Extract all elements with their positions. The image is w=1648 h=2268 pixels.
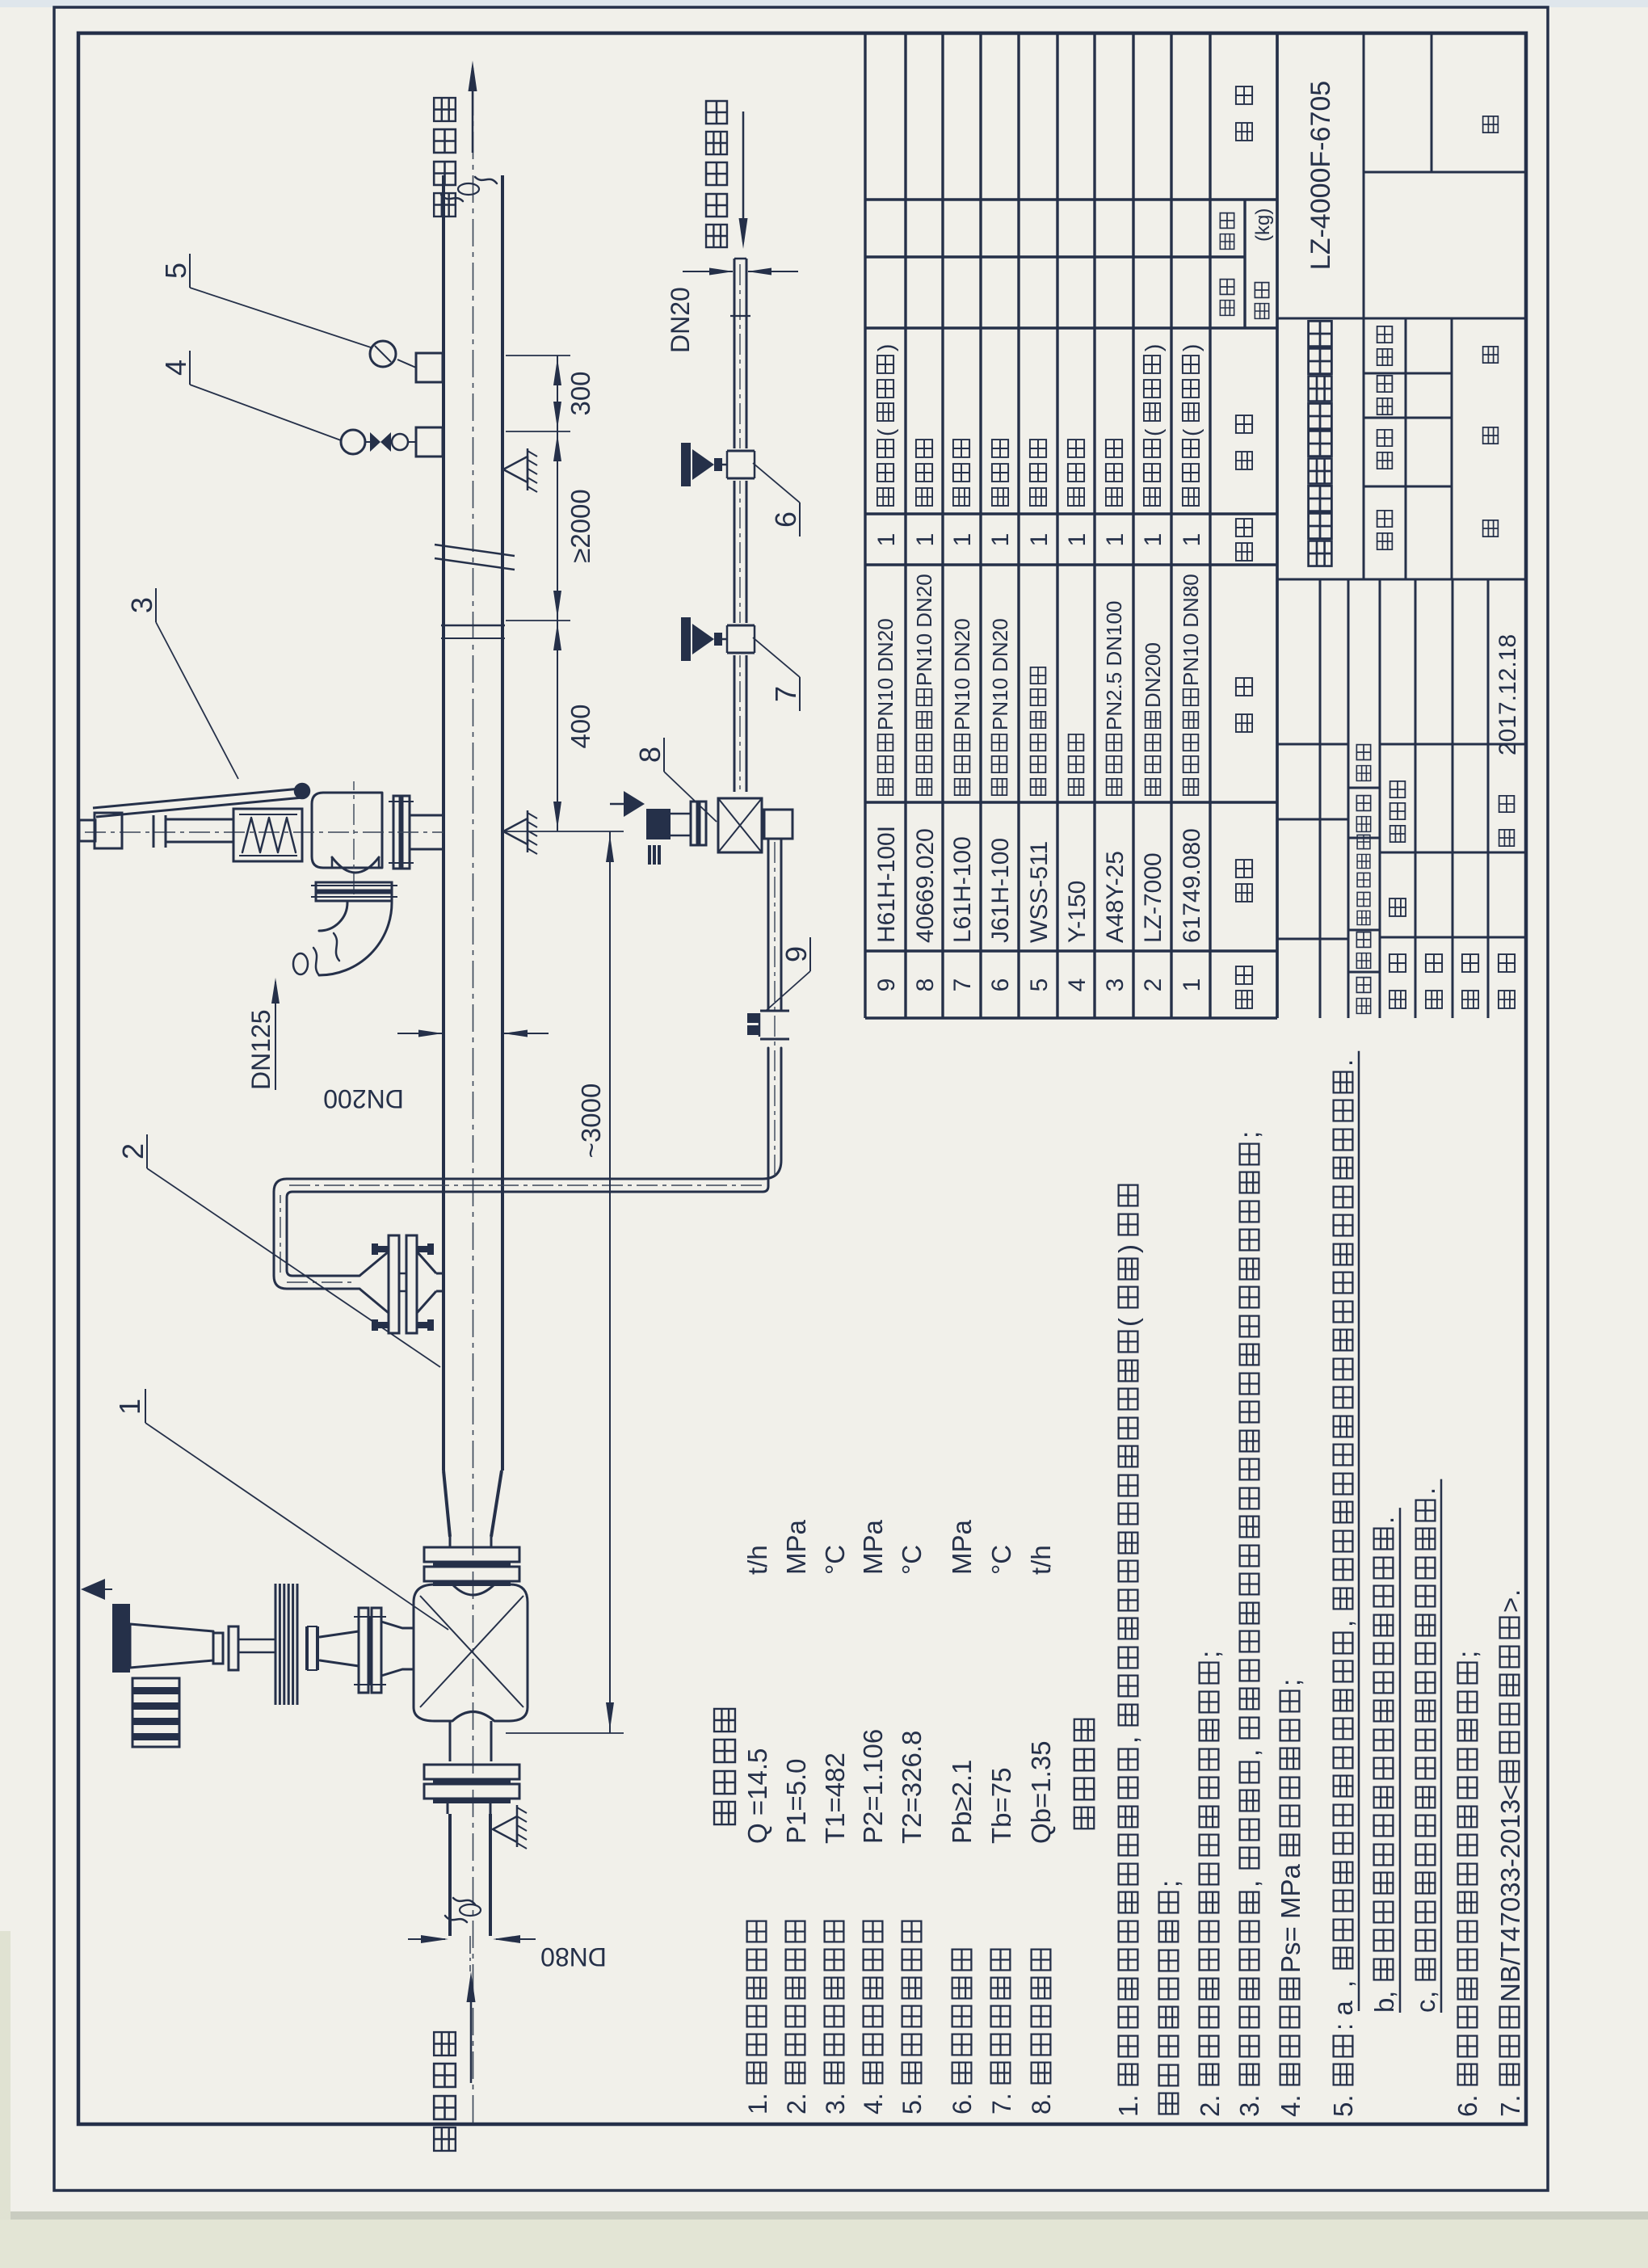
svg-text:.: . <box>1369 1517 1399 1524</box>
svg-text:;: ; <box>1154 1880 1184 1887</box>
svg-text:300: 300 <box>565 371 595 415</box>
svg-text:.: . <box>1410 1487 1440 1495</box>
svg-text:LZ-4000F-6705: LZ-4000F-6705 <box>1305 81 1336 270</box>
svg-text:9: 9 <box>780 946 813 962</box>
svg-text:;: ; <box>1453 1651 1482 1658</box>
svg-text:,: , <box>1410 1991 1440 1998</box>
svg-text:2: 2 <box>116 1143 149 1159</box>
svg-text:Pb≥2.1: Pb≥2.1 <box>947 1760 977 1844</box>
svg-text:H61H-100I: H61H-100I <box>873 826 900 943</box>
svg-text:4: 4 <box>159 360 192 376</box>
svg-text:;: ; <box>1195 1651 1225 1658</box>
svg-text:t/h: t/h <box>742 1545 772 1575</box>
svg-text:2017.12.18: 2017.12.18 <box>1495 634 1521 755</box>
svg-text:3: 3 <box>125 597 158 613</box>
svg-text:3.: 3. <box>821 2093 850 2114</box>
svg-text:Y-150: Y-150 <box>1064 881 1091 943</box>
svg-text:9: 9 <box>873 978 900 992</box>
svg-text:7.: 7. <box>1495 2094 1525 2117</box>
svg-text:MPa: MPa <box>947 1520 977 1576</box>
svg-text:7: 7 <box>769 686 802 702</box>
svg-text:t/h: t/h <box>1026 1545 1056 1575</box>
svg-text:2.: 2. <box>1195 2094 1225 2117</box>
svg-text:MPa: MPa <box>781 1520 811 1576</box>
svg-text:T1=482: T1=482 <box>820 1753 850 1844</box>
svg-text:c: c <box>1410 2000 1440 2013</box>
svg-text:DN20: DN20 <box>666 287 695 353</box>
svg-text:PN10 DN20: PN10 DN20 <box>988 618 1012 730</box>
svg-text:): ) <box>873 344 898 351</box>
svg-text:6: 6 <box>987 978 1014 992</box>
svg-text:>: > <box>1495 1597 1525 1613</box>
svg-text:NB/T47033-2013: NB/T47033-2013 <box>1495 1799 1525 2002</box>
svg-text:,: , <box>1113 1736 1143 1744</box>
svg-text:DN80: DN80 <box>540 1942 607 1971</box>
svg-text:,: , <box>1234 1749 1264 1757</box>
svg-text:;: ; <box>1276 1679 1305 1686</box>
svg-text:1.: 1. <box>743 2093 772 2114</box>
svg-text:4.: 4. <box>1276 2094 1305 2117</box>
svg-text:LZ-7000: LZ-7000 <box>1140 852 1167 943</box>
svg-text:Ps= MPa: Ps= MPa <box>1276 1864 1305 1973</box>
svg-text:6: 6 <box>769 511 802 528</box>
svg-text:6.: 6. <box>1453 2094 1482 2117</box>
svg-text:PN10 DN20: PN10 DN20 <box>873 618 898 730</box>
svg-text:2.: 2. <box>782 2093 811 2114</box>
svg-text:,: , <box>1369 1991 1399 1998</box>
svg-text:Q =14.5: Q =14.5 <box>742 1748 772 1844</box>
svg-text:1: 1 <box>1179 533 1205 547</box>
svg-text:P2=1.106: P2=1.106 <box>858 1729 888 1844</box>
svg-text:L61H-100: L61H-100 <box>949 836 976 943</box>
svg-text:1: 1 <box>873 533 900 547</box>
svg-text:PN10 DN20: PN10 DN20 <box>912 574 936 686</box>
svg-text:b: b <box>1369 1998 1399 2013</box>
svg-text:A48Y-25: A48Y-25 <box>1102 851 1129 943</box>
svg-text:2: 2 <box>1140 978 1167 992</box>
svg-text:40669.020: 40669.020 <box>912 828 939 943</box>
svg-text:61749.080: 61749.080 <box>1179 828 1205 943</box>
svg-text:): ) <box>1113 1244 1143 1253</box>
svg-text:5: 5 <box>1026 978 1053 992</box>
svg-text:PN10 DN20: PN10 DN20 <box>950 618 974 730</box>
svg-text:MPa: MPa <box>858 1520 888 1576</box>
svg-text:5.: 5. <box>898 2093 927 2114</box>
svg-text:7: 7 <box>949 978 976 992</box>
svg-text:°C: °C <box>820 1545 850 1575</box>
svg-text:J61H-100: J61H-100 <box>987 838 1014 943</box>
svg-text:,: , <box>1328 1620 1358 1627</box>
svg-text:DN200: DN200 <box>1141 642 1165 708</box>
svg-text:3: 3 <box>1102 978 1129 992</box>
svg-text:): ) <box>1179 344 1204 351</box>
svg-text:7.: 7. <box>987 2093 1016 2114</box>
svg-text:(kg): (kg) <box>1252 208 1274 242</box>
svg-text:Qb=1.35: Qb=1.35 <box>1026 1740 1056 1844</box>
svg-text:<: < <box>1495 1785 1525 1800</box>
svg-text:Tb=75: Tb=75 <box>986 1768 1016 1845</box>
svg-text:(: ( <box>1113 1318 1143 1327</box>
svg-text:,: , <box>1328 1980 1358 1988</box>
svg-text:: a: : a <box>1328 2001 1358 2030</box>
svg-text:.: . <box>1495 1589 1525 1597</box>
svg-text:°C: °C <box>986 1545 1016 1575</box>
svg-text:DN125: DN125 <box>246 1009 275 1090</box>
svg-text:°C: °C <box>897 1545 927 1575</box>
svg-text:1: 1 <box>987 533 1014 547</box>
svg-text:1: 1 <box>1179 978 1205 992</box>
svg-text:3.: 3. <box>1234 2094 1264 2117</box>
svg-text:1: 1 <box>949 533 976 547</box>
svg-text:.: . <box>1328 1059 1358 1067</box>
svg-text:DN200: DN200 <box>323 1084 404 1113</box>
svg-text:5: 5 <box>159 263 192 279</box>
svg-text:≥2000: ≥2000 <box>565 489 595 563</box>
svg-text:8: 8 <box>633 747 666 763</box>
svg-text:4.: 4. <box>859 2093 888 2114</box>
svg-text:(: ( <box>1179 428 1204 436</box>
svg-text:1: 1 <box>1064 533 1091 547</box>
svg-text:8.: 8. <box>1027 2093 1056 2114</box>
svg-text:PN10 DN80: PN10 DN80 <box>1179 574 1203 686</box>
svg-text:T2=326.8: T2=326.8 <box>897 1731 927 1844</box>
svg-text:400: 400 <box>565 704 595 748</box>
svg-text:1: 1 <box>1140 533 1167 547</box>
svg-text:1: 1 <box>113 1399 146 1415</box>
svg-text:1.: 1. <box>1113 2094 1143 2117</box>
svg-text:1: 1 <box>1026 533 1053 547</box>
svg-text:;: ; <box>1234 1131 1264 1138</box>
svg-text:~3000: ~3000 <box>576 1084 606 1159</box>
svg-text:5.: 5. <box>1328 2094 1358 2117</box>
svg-text:PN2.5 DN100: PN2.5 DN100 <box>1102 601 1126 730</box>
svg-text:P1=5.0: P1=5.0 <box>781 1758 811 1844</box>
svg-text:6.: 6. <box>948 2093 977 2114</box>
svg-text:4: 4 <box>1064 978 1091 992</box>
svg-text:,: , <box>1234 1880 1264 1887</box>
svg-text:8: 8 <box>912 978 939 992</box>
svg-text:(: ( <box>1141 428 1166 436</box>
svg-text:WSS-511: WSS-511 <box>1026 841 1053 943</box>
svg-text:(: ( <box>873 428 898 436</box>
svg-text:): ) <box>1141 344 1166 351</box>
svg-text:1: 1 <box>912 533 939 547</box>
svg-text:1: 1 <box>1102 533 1129 547</box>
